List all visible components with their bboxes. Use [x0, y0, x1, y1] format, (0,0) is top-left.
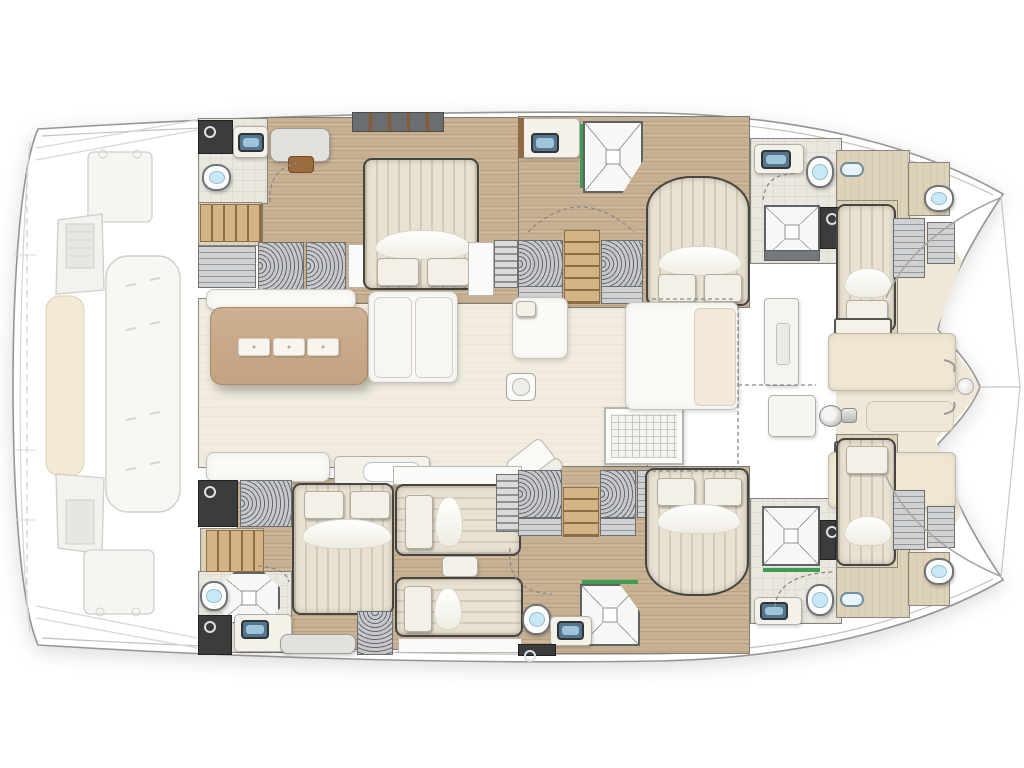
windlass-pad: [768, 395, 816, 437]
galley-island: [210, 307, 368, 385]
pillow: [704, 478, 742, 506]
cabinet-door: [776, 323, 790, 365]
desk: [280, 634, 356, 654]
shelf-unit: [206, 530, 264, 572]
toilet: [806, 584, 834, 616]
locker: [893, 490, 925, 550]
toilet: [806, 156, 834, 188]
toilet: [924, 558, 954, 585]
pillow: [657, 478, 695, 506]
winch-gypsy: [841, 408, 857, 423]
sheet-fold: [302, 519, 392, 549]
pillow: [377, 258, 419, 286]
shelf-unit: [563, 487, 599, 537]
hanging-locker: [601, 240, 643, 288]
double-bed: [363, 158, 479, 290]
deck-hatch: [866, 401, 954, 432]
sheet-fold: [658, 246, 742, 276]
hob: [273, 338, 305, 356]
bath-cabinet: [518, 644, 556, 656]
pillow: [405, 495, 433, 549]
wood-edge: [518, 118, 524, 158]
pillow: [846, 446, 888, 474]
sink: [557, 621, 584, 640]
bow-fender: [957, 378, 974, 395]
shower-glass: [582, 580, 638, 584]
hanging-locker: [357, 611, 393, 655]
bath-mat: [764, 250, 820, 261]
sheet-fold: [375, 230, 471, 260]
single-bed: [395, 577, 523, 637]
pillow: [404, 586, 432, 632]
chaise-lounge: [512, 297, 568, 359]
shelf-unit: [564, 230, 600, 304]
companionway-steps: [494, 240, 518, 288]
stool: [288, 156, 314, 173]
hanging-locker: [306, 242, 346, 290]
sink: [840, 592, 864, 607]
dinette-sofa: [368, 291, 458, 383]
sheet-fold: [844, 268, 892, 298]
companionway-steps: [496, 474, 520, 532]
winch-drum: [819, 405, 843, 427]
locker: [893, 218, 925, 278]
drawer-unit: [600, 518, 636, 536]
double-bed: [292, 483, 394, 615]
toilet: [202, 164, 231, 191]
sheet-fold: [657, 504, 741, 534]
nightstand: [442, 556, 478, 577]
toilet: [200, 581, 228, 611]
hanging-locker: [240, 480, 292, 527]
fwd-sunbed: [828, 333, 956, 391]
side-shelf: [352, 112, 444, 132]
hob: [307, 338, 339, 356]
hob: [238, 338, 270, 356]
cockpit-sofa: [625, 302, 739, 410]
single-bed: [836, 438, 896, 566]
shower-glass: [763, 568, 820, 572]
shower-compartment: [198, 615, 232, 655]
shower-compartment: [198, 120, 233, 154]
sink: [531, 133, 559, 153]
pillow: [427, 258, 469, 286]
saloon-aft-sofa: [206, 452, 330, 482]
sink: [238, 133, 264, 152]
cushion: [694, 308, 736, 406]
pillow: [516, 301, 536, 317]
sheet-fold: [435, 497, 463, 547]
shower: [762, 506, 820, 566]
sheet-fold: [844, 516, 892, 546]
toilet: [924, 185, 954, 212]
toilet: [522, 604, 551, 635]
skylight: [604, 407, 684, 465]
locker: [927, 506, 955, 548]
double-bed: [646, 176, 750, 306]
single-bed: [836, 204, 896, 332]
baseboard: [398, 638, 522, 653]
pillow: [658, 274, 696, 302]
fixtures-layer: [0, 0, 1024, 768]
sheet-fold: [434, 588, 462, 630]
windlass: [815, 399, 859, 433]
shelf-unit: [200, 204, 262, 242]
double-bed: [645, 468, 749, 596]
deck-cabinet: [764, 298, 799, 386]
bench: [468, 242, 494, 296]
wardrobe-dark: [198, 480, 238, 527]
cushion: [415, 297, 453, 378]
hanging-locker: [518, 240, 563, 288]
cushion: [374, 297, 412, 378]
locker: [927, 222, 955, 264]
hanging-locker: [600, 470, 636, 518]
hanging-locker: [518, 470, 562, 518]
sink: [760, 602, 788, 620]
drawer-unit: [198, 246, 256, 288]
locker: [820, 520, 836, 560]
drawer-unit: [518, 518, 562, 536]
mast-base: [506, 373, 536, 401]
pillow: [304, 491, 344, 519]
hanging-locker: [258, 242, 304, 290]
sink: [241, 620, 269, 639]
sink: [761, 150, 791, 169]
pillow: [350, 491, 390, 519]
sink: [840, 162, 864, 177]
pillow: [704, 274, 742, 302]
yacht-floorplan-canvas: [0, 0, 1024, 768]
